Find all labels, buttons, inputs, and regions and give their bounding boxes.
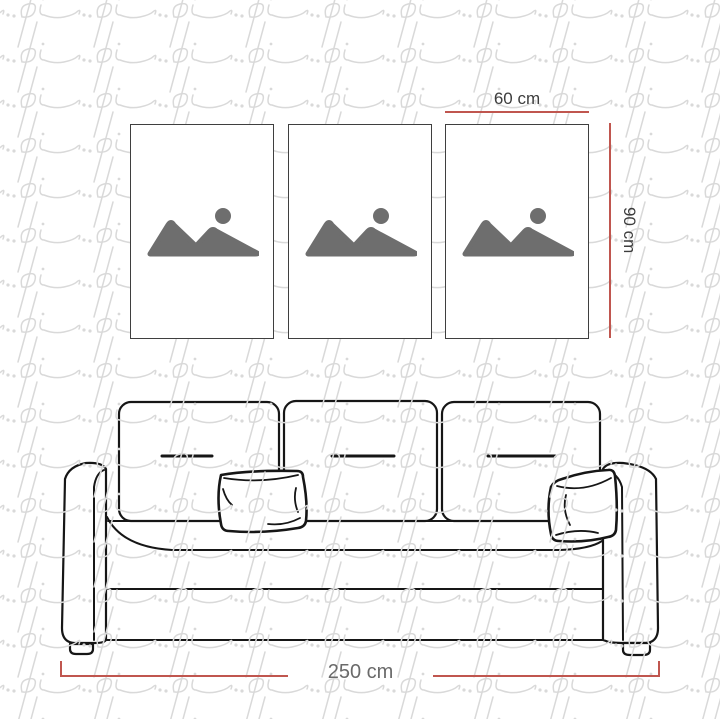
sofa-width-dimension-tick-left [60,661,62,677]
sofa-line-art-illustration [0,0,720,719]
placeholder-sun-dot [215,208,231,224]
frame-width-label: 60 cm [445,89,589,109]
throw-pillow-right [549,470,617,542]
armrest-left-body [62,463,106,643]
sofa-foot-right [623,643,650,655]
placeholder-mountains [150,223,258,255]
art-frame-2 [288,124,432,339]
sofa-width-label: 250 cm [288,662,433,683]
sofa-feet [70,643,650,655]
sofa-width-dimension-line-left [60,675,288,677]
sofa-width-dimension-tick-right [658,661,660,677]
sofa-back-cushions [119,401,600,521]
image-placeholder-icon [461,206,574,257]
image-placeholder-icon [304,206,417,257]
placeholder-mountains [465,223,573,255]
art-frame-1 [130,124,274,339]
frame-width-dimension-line [445,111,589,113]
placeholder-mountains [308,223,416,255]
image-placeholder-icon [146,206,259,257]
sofa-seat-base [105,517,605,640]
sofa-width-dimension-line-right [433,675,660,677]
placeholder-sun-dot [530,208,546,224]
sofa-armrest-left [62,463,106,643]
product-dimension-mockup: 60 cm 90 cm 250 cm [0,0,720,719]
frame-height-label: 90 cm [619,123,639,338]
sofa-foot-left [70,644,93,654]
frame-height-dimension-line [609,123,611,338]
throw-pillow-left [219,471,307,532]
art-frame-3 [445,124,589,339]
placeholder-sun-dot [373,208,389,224]
